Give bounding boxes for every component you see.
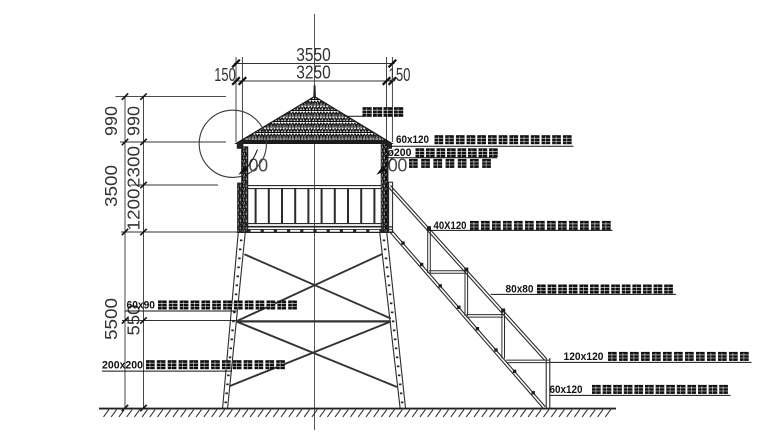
svg-text:120x120: 120x120	[564, 351, 604, 363]
svg-text:150: 150	[214, 65, 236, 85]
svg-text:5500: 5500	[101, 298, 121, 340]
svg-text:60x90: 60x90	[127, 300, 156, 312]
svg-text:990: 990	[101, 106, 121, 136]
svg-text:150: 150	[389, 65, 411, 85]
svg-text:00: 00	[249, 156, 269, 176]
svg-text:3250: 3250	[296, 62, 331, 83]
svg-text:60x120: 60x120	[550, 384, 583, 396]
svg-text:80x80: 80x80	[506, 284, 534, 296]
svg-text:60x120: 60x120	[396, 134, 429, 146]
svg-text:3500: 3500	[101, 165, 121, 207]
svg-text:200x200: 200x200	[102, 359, 143, 371]
svg-text:990: 990	[124, 106, 144, 136]
svg-text:2300: 2300	[124, 146, 144, 188]
svg-text:1200: 1200	[124, 188, 144, 230]
